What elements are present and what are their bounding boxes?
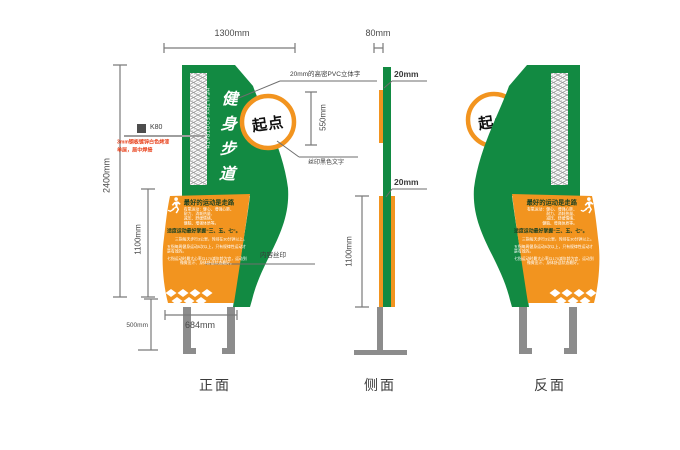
panel-paragraph: 五指每周健身运动5次以上，只有规律性运动才是有效的。 (167, 245, 247, 254)
back-panel-content: 最好的运动是走路 有氧运动：健心、增强心肺、 耐力、消耗热量、 减压、舒缓情绪、… (514, 197, 596, 289)
dim-side-thickness: 80mm (348, 28, 408, 39)
view-label-front: 正面 (185, 375, 245, 395)
panel-paragraph: 五指每周健身运动5次以上，只有规律性运动才是有效的。 (514, 245, 594, 254)
side-panel-strip-right (391, 196, 395, 307)
panel-paragraph: 三指每天步行3公里，时间在30分钟以上。 (514, 238, 594, 243)
k80-swatch (137, 124, 146, 133)
panel-title: 最好的运动是走路 (514, 199, 577, 206)
back-posts (519, 307, 577, 354)
panel-paragraph: 七指运动时最大心率以170减年龄为宜，运动到微微出汗、身体舒适状态最好。 (514, 257, 594, 266)
side-panel-strip-left (379, 196, 383, 307)
side-base (354, 307, 407, 355)
runner-icon (167, 197, 181, 215)
panel-subline: 有氧运动：健心、增强心肺、 (184, 208, 234, 213)
dim-front-width: 1300mm (192, 28, 272, 39)
dim-side-panel-height: 1100mm (344, 222, 355, 282)
panel-paragraph: 三指每天步行3公里，时间在30分钟以上。 (167, 238, 247, 243)
dim-total-height: 2400mm (102, 146, 113, 206)
signage-design-sheet: 起点 (0, 0, 680, 450)
note-pvc-letters: 20mm的高密PVC立体字 (290, 71, 360, 79)
view-label-back: 反面 (520, 375, 580, 395)
dim-base-width: 684mm (170, 320, 230, 331)
panel-title: 最好的运动是走路 (184, 199, 234, 206)
dim-circle-height: 550mm (318, 88, 329, 148)
view-label-side: 侧面 (350, 375, 410, 395)
panel-paragraph: 七指运动时最大心率以170减年龄为宜，运动到微微出汗、身体舒适状态最好。 (167, 257, 247, 266)
note-k80: K80 (150, 124, 162, 132)
front-vertical-subtitle: HEALTHY FOOTPATH (205, 88, 210, 184)
front-vertical-title: 健身步道 (212, 90, 240, 206)
runner-icon (580, 197, 594, 215)
dim-post-height: 500mm (112, 322, 148, 330)
note-silk-black-text: 丝印黑色文字 (308, 160, 344, 167)
panel-highlight: 适度运动最好掌握“三、五、七”。 (514, 229, 594, 235)
panel-subline: 健脑、增强体质等。 (514, 221, 577, 226)
dim-front-panel-height: 1100mm (133, 210, 144, 270)
note-material-line1: 3mm钢板镀锌白色烤漆 (117, 140, 169, 146)
panel-subline: 健脑、增强体质等。 (184, 221, 234, 226)
label-thickness-bottom: 20mm (394, 178, 419, 186)
label-thickness-top: 20mm (394, 70, 419, 78)
note-material-line2: 单层，居中焊接 (117, 148, 152, 154)
back-hatch-strip (551, 73, 568, 185)
side-green-bar (383, 67, 391, 307)
front-panel-content: 最好的运动是走路 有氧运动：健心、增强心肺、 耐力、消耗热量、 减压、舒缓情绪、… (167, 197, 247, 289)
panel-highlight: 适度运动最好掌握“三、五、七”。 (167, 229, 247, 235)
side-pvc-strip-top (379, 90, 383, 143)
note-content-silk: 内容丝印 (260, 252, 286, 260)
